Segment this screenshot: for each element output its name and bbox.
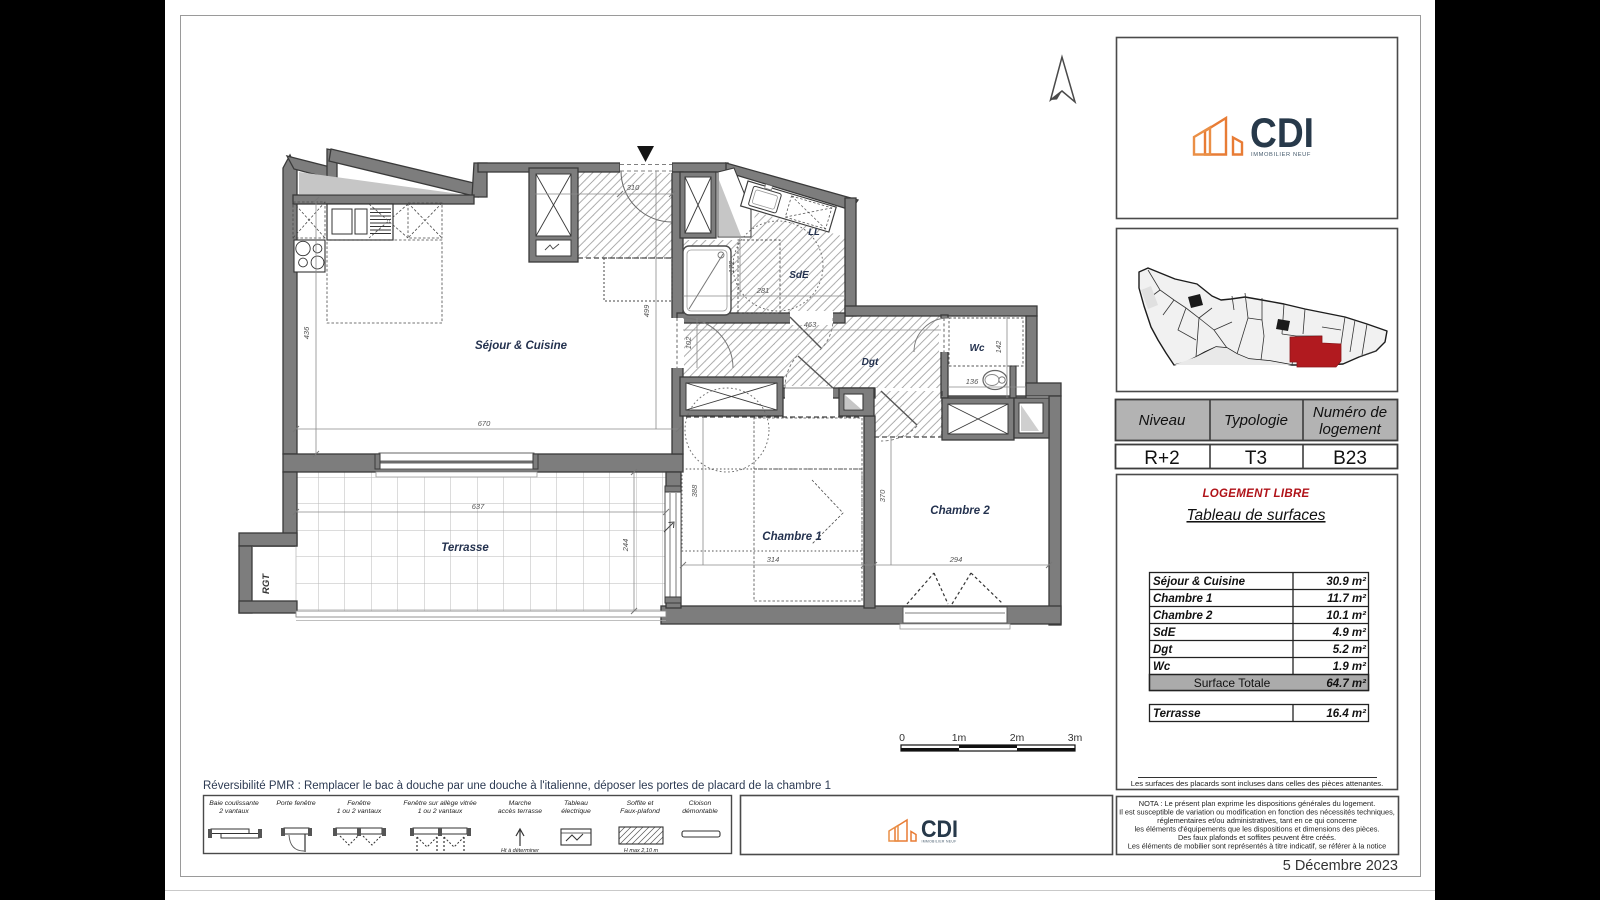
svg-text:670: 670 [478, 419, 491, 428]
svg-text:accès terrasse: accès terrasse [498, 808, 542, 815]
svg-text:Dgt: Dgt [1153, 644, 1173, 656]
svg-text:Wc: Wc [1153, 661, 1171, 673]
svg-text:Faux-plafond: Faux-plafond [620, 808, 660, 815]
svg-text:30.9 m²: 30.9 m² [1326, 576, 1367, 588]
svg-text:Soffite et: Soffite et [627, 800, 655, 807]
svg-text:11.7 m²: 11.7 m² [1327, 593, 1367, 605]
svg-text:SdE: SdE [1153, 627, 1176, 639]
svg-text:Porte fenêtre: Porte fenêtre [276, 800, 316, 807]
svg-text:310: 310 [627, 183, 640, 192]
svg-text:4.9 m²: 4.9 m² [1332, 627, 1367, 639]
svg-text:Séjour & Cuisine: Séjour & Cuisine [475, 340, 568, 352]
svg-text:Fenêtre: Fenêtre [347, 800, 371, 807]
svg-text:logement: logement [1319, 421, 1382, 438]
svg-text:H max 2,10 m: H max 2,10 m [624, 848, 659, 854]
svg-text:Cloison: Cloison [689, 800, 712, 807]
svg-text:Chambre 1: Chambre 1 [1153, 593, 1212, 605]
svg-text:370: 370 [878, 489, 887, 502]
svg-text:Les éléments de mobilier sont: Les éléments de mobilier sont représenté… [1128, 842, 1386, 851]
svg-text:T3: T3 [1245, 448, 1267, 469]
svg-text:Terrasse: Terrasse [441, 542, 489, 554]
svg-text:Typologie: Typologie [1224, 412, 1288, 429]
svg-text:Tableau: Tableau [564, 800, 588, 807]
svg-text:SdE: SdE [789, 270, 809, 281]
svg-text:3m: 3m [1068, 732, 1083, 744]
svg-text:2 vantaux: 2 vantaux [218, 808, 249, 815]
svg-text:294: 294 [949, 555, 963, 564]
svg-text:1 ou 2 vantaux: 1 ou 2 vantaux [337, 808, 382, 815]
svg-text:1m: 1m [952, 732, 967, 744]
svg-text:Wc: Wc [970, 343, 985, 354]
svg-text:électrique: électrique [561, 808, 591, 815]
svg-text:Ht à déterminer: Ht à déterminer [501, 848, 540, 854]
svg-text:136: 136 [966, 377, 979, 386]
svg-text:388: 388 [690, 484, 699, 497]
svg-text:102: 102 [684, 336, 693, 349]
svg-text:démontable: démontable [682, 808, 718, 815]
svg-text:64.7 m²: 64.7 m² [1326, 678, 1367, 690]
svg-text:R+2: R+2 [1144, 448, 1179, 469]
svg-text:16.4 m²: 16.4 m² [1326, 708, 1367, 720]
svg-text:0: 0 [899, 732, 905, 744]
svg-text:LOGEMENT LIBRE: LOGEMENT LIBRE [1202, 488, 1309, 500]
svg-text:Baie coulissante: Baie coulissante [209, 800, 259, 807]
svg-text:172: 172 [727, 260, 736, 273]
svg-text:IMMOBILIER NEUF: IMMOBILIER NEUF [922, 840, 957, 844]
svg-text:Séjour & Cuisine: Séjour & Cuisine [1153, 576, 1246, 588]
svg-text:Surface Totale: Surface Totale [1194, 676, 1271, 690]
svg-text:Dgt: Dgt [862, 357, 879, 368]
svg-text:Chambre 1: Chambre 1 [762, 531, 821, 543]
svg-text:LL: LL [808, 227, 820, 238]
svg-text:Terrasse: Terrasse [1153, 708, 1201, 720]
svg-text:IMMOBILIER NEUF: IMMOBILIER NEUF [1251, 152, 1311, 158]
svg-text:Numéro de: Numéro de [1313, 404, 1387, 421]
svg-text:436: 436 [302, 326, 311, 339]
svg-text:5.2 m²: 5.2 m² [1333, 644, 1367, 656]
svg-text:Fenêtre sur allège vitrée: Fenêtre sur allège vitrée [403, 800, 477, 807]
svg-text:5 Décembre 2023: 5 Décembre 2023 [1283, 858, 1398, 874]
svg-text:244: 244 [621, 539, 630, 553]
svg-text:637: 637 [472, 502, 485, 511]
svg-text:499: 499 [642, 304, 651, 317]
svg-text:Les surfaces des placards sont: Les surfaces des placards sont incluses … [1131, 779, 1383, 788]
svg-text:Chambre 2: Chambre 2 [1153, 610, 1213, 622]
svg-text:463: 463 [804, 320, 817, 329]
svg-text:Réversibilité PMR : Remplacer: Réversibilité PMR : Remplacer le bac à d… [203, 780, 831, 792]
svg-text:Marche: Marche [509, 800, 532, 807]
svg-text:RGT: RGT [261, 573, 272, 594]
svg-text:10.1 m²: 10.1 m² [1326, 610, 1367, 622]
svg-text:142: 142 [994, 340, 1003, 353]
svg-text:1.9 m²: 1.9 m² [1333, 661, 1367, 673]
svg-text:CDI: CDI [1250, 109, 1314, 156]
svg-text:2m: 2m [1010, 732, 1025, 744]
svg-text:1 ou 2 vantaux: 1 ou 2 vantaux [418, 808, 463, 815]
svg-text:Tableau de surfaces: Tableau de surfaces [1186, 507, 1325, 524]
svg-text:314: 314 [767, 555, 780, 564]
svg-text:Chambre 2: Chambre 2 [930, 505, 990, 517]
svg-text:Niveau: Niveau [1139, 412, 1186, 429]
svg-text:B23: B23 [1333, 448, 1367, 469]
svg-text:281: 281 [756, 286, 770, 295]
